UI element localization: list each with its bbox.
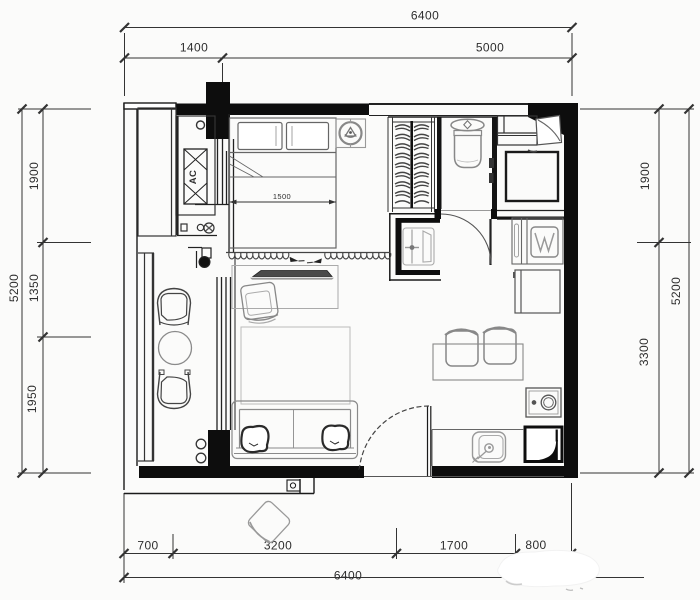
svg-text:6400: 6400 — [334, 569, 362, 583]
svg-text:1350: 1350 — [27, 274, 41, 302]
svg-text:800: 800 — [525, 538, 546, 552]
svg-text:5000: 5000 — [476, 41, 504, 55]
svg-text:1700: 1700 — [440, 539, 468, 553]
svg-text:1900: 1900 — [27, 162, 41, 190]
svg-text:3300: 3300 — [637, 338, 651, 366]
svg-text:AC: AC — [188, 170, 199, 185]
svg-text:1400: 1400 — [180, 41, 208, 55]
svg-text:1950: 1950 — [25, 385, 39, 413]
svg-text:700: 700 — [137, 539, 158, 553]
svg-text:1500: 1500 — [273, 192, 291, 201]
svg-text:6400: 6400 — [411, 9, 439, 23]
svg-text:1900: 1900 — [638, 162, 652, 190]
svg-text:5200: 5200 — [7, 274, 21, 302]
svg-text:5200: 5200 — [669, 277, 683, 305]
